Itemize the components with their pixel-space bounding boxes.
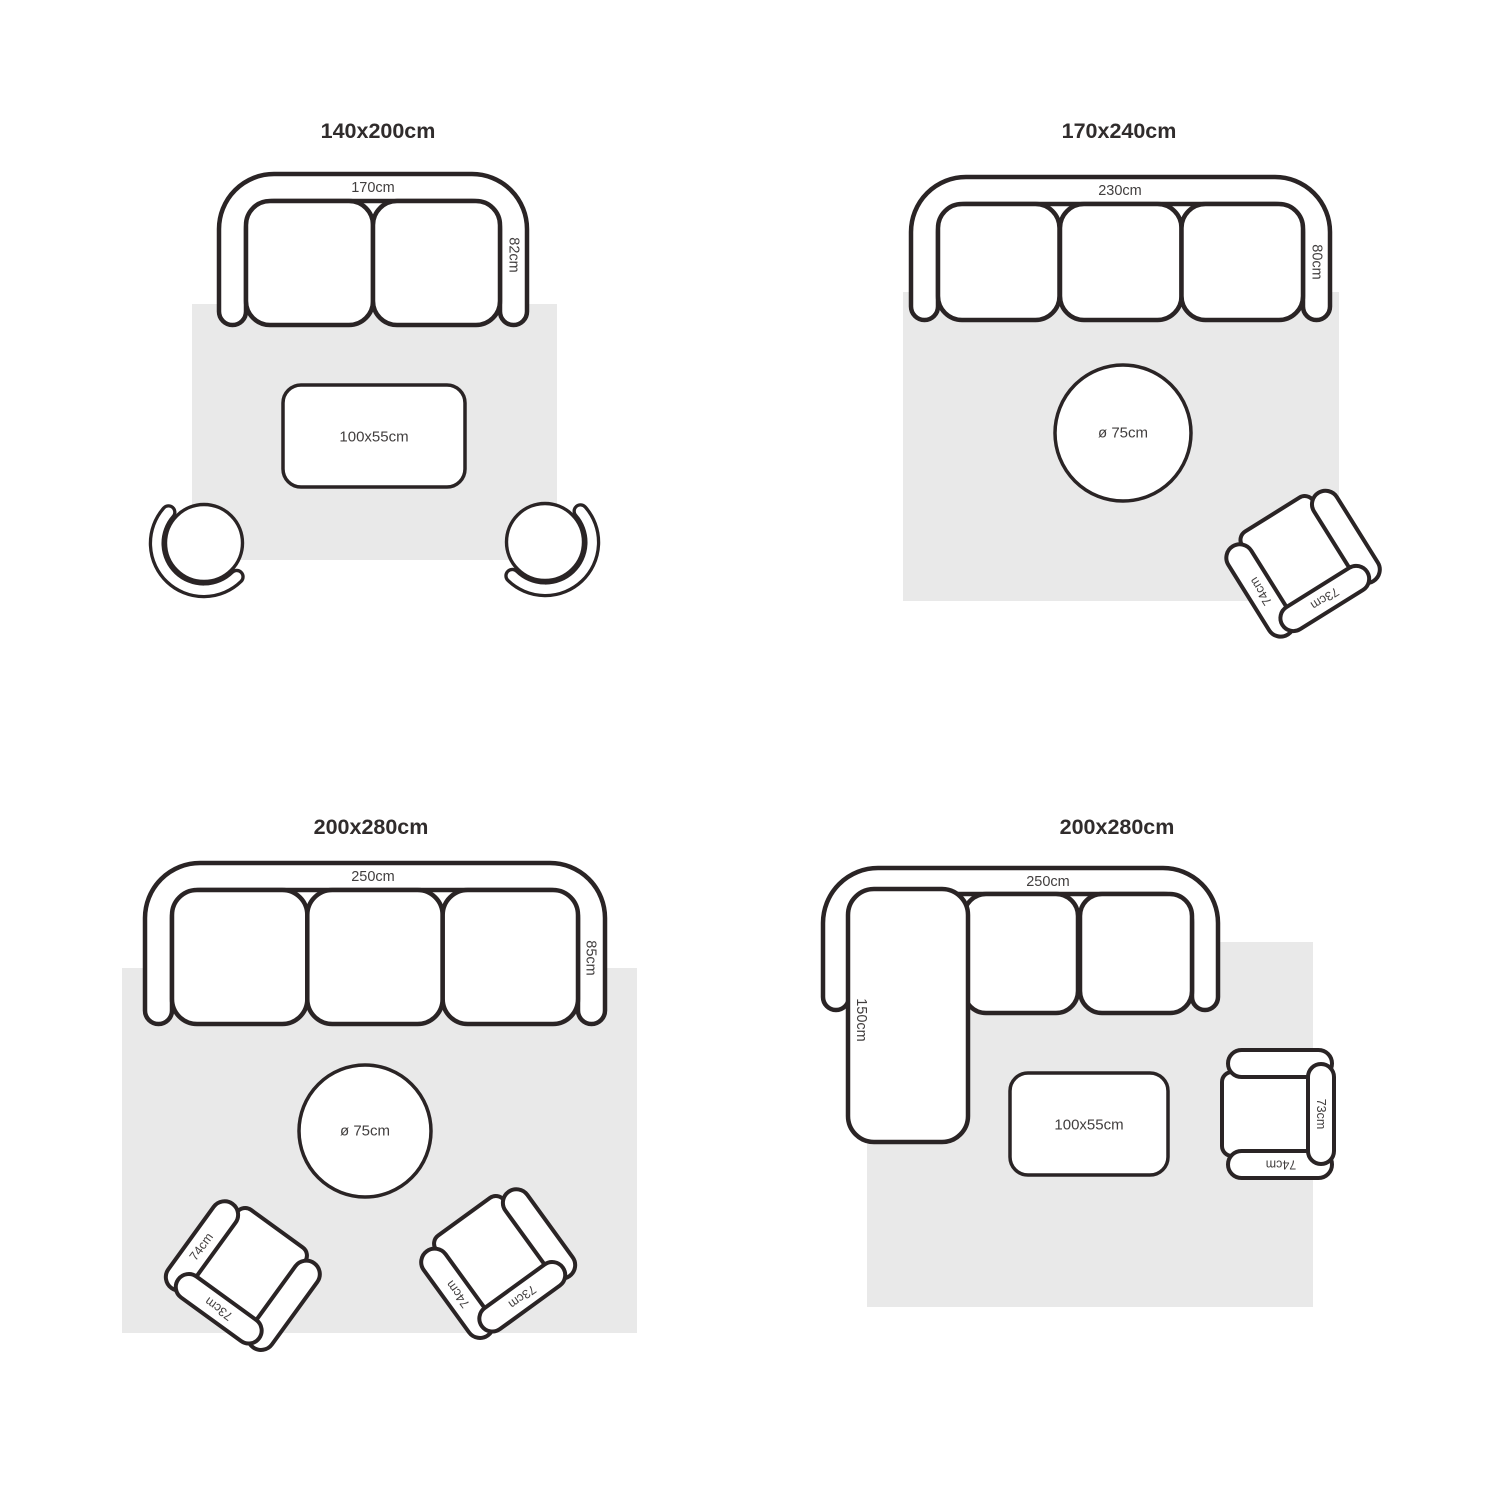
armchair-back-label: 73cm	[1314, 1099, 1328, 1130]
sofa-depth-label: 85cm	[583, 940, 599, 975]
sofa-cushion	[307, 890, 442, 1024]
layout-200x280-b: 200x280cm 250cm 150cm 100x55cm 74cm 73cm	[823, 815, 1334, 1307]
sofa-width-label: 230cm	[1098, 183, 1142, 199]
sofa-width-label: 250cm	[1026, 874, 1070, 890]
rug-size-guide-diagram: 140x200cm 170cm 82cm 100x55cm 170x240cm …	[0, 0, 1500, 1500]
sofa-depth-label: 82cm	[506, 237, 522, 272]
sofa-cushion	[443, 890, 578, 1024]
rug-size-title: 170x240cm	[1062, 119, 1177, 143]
armchair-seat	[1222, 1072, 1312, 1156]
armchair-arm-label: 74cm	[1266, 1158, 1297, 1172]
sofa-width-label: 250cm	[351, 869, 395, 885]
round-chair	[157, 505, 243, 591]
coffee-table-size-label: 100x55cm	[339, 429, 408, 446]
layout-200x280-a: 200x280cm 250cm 85cm ø 75cm 74cm 73cm 74…	[122, 815, 637, 1357]
rug-size-title: 200x280cm	[1060, 815, 1175, 839]
rug-size-title: 200x280cm	[314, 815, 429, 839]
sofa-depth-label: 80cm	[1309, 244, 1325, 279]
sofa-cushion	[1182, 204, 1304, 320]
sofa-chaise-label: 150cm	[853, 998, 869, 1042]
sofa-cushion	[1080, 894, 1192, 1013]
sofa-cushion	[1060, 204, 1182, 320]
sofa-cushion	[938, 204, 1060, 320]
armchair: 74cm 73cm	[1222, 1050, 1334, 1178]
layout-170x240: 170x240cm 230cm 80cm ø 75cm 74cm 73cm	[903, 119, 1386, 643]
rug-size-guide-page: 140x200cm 170cm 82cm 100x55cm 170x240cm …	[0, 0, 1500, 1500]
coffee-table-size-label: 100x55cm	[1054, 1117, 1123, 1134]
round-table-size-label: ø 75cm	[340, 1123, 390, 1140]
round-chair-seat	[507, 504, 584, 581]
sofa-width-label: 170cm	[351, 180, 395, 196]
round-chair	[507, 504, 593, 590]
sofa-cushion	[373, 201, 500, 325]
sofa-cushion	[172, 890, 307, 1024]
layout-140x200: 140x200cm 170cm 82cm 100x55cm	[157, 119, 592, 590]
round-table-size-label: ø 75cm	[1098, 425, 1148, 442]
round-chair-seat	[166, 505, 243, 582]
sofa-cushion	[246, 201, 373, 325]
rug-size-title: 140x200cm	[321, 119, 436, 143]
sofa-cushion	[964, 894, 1078, 1013]
